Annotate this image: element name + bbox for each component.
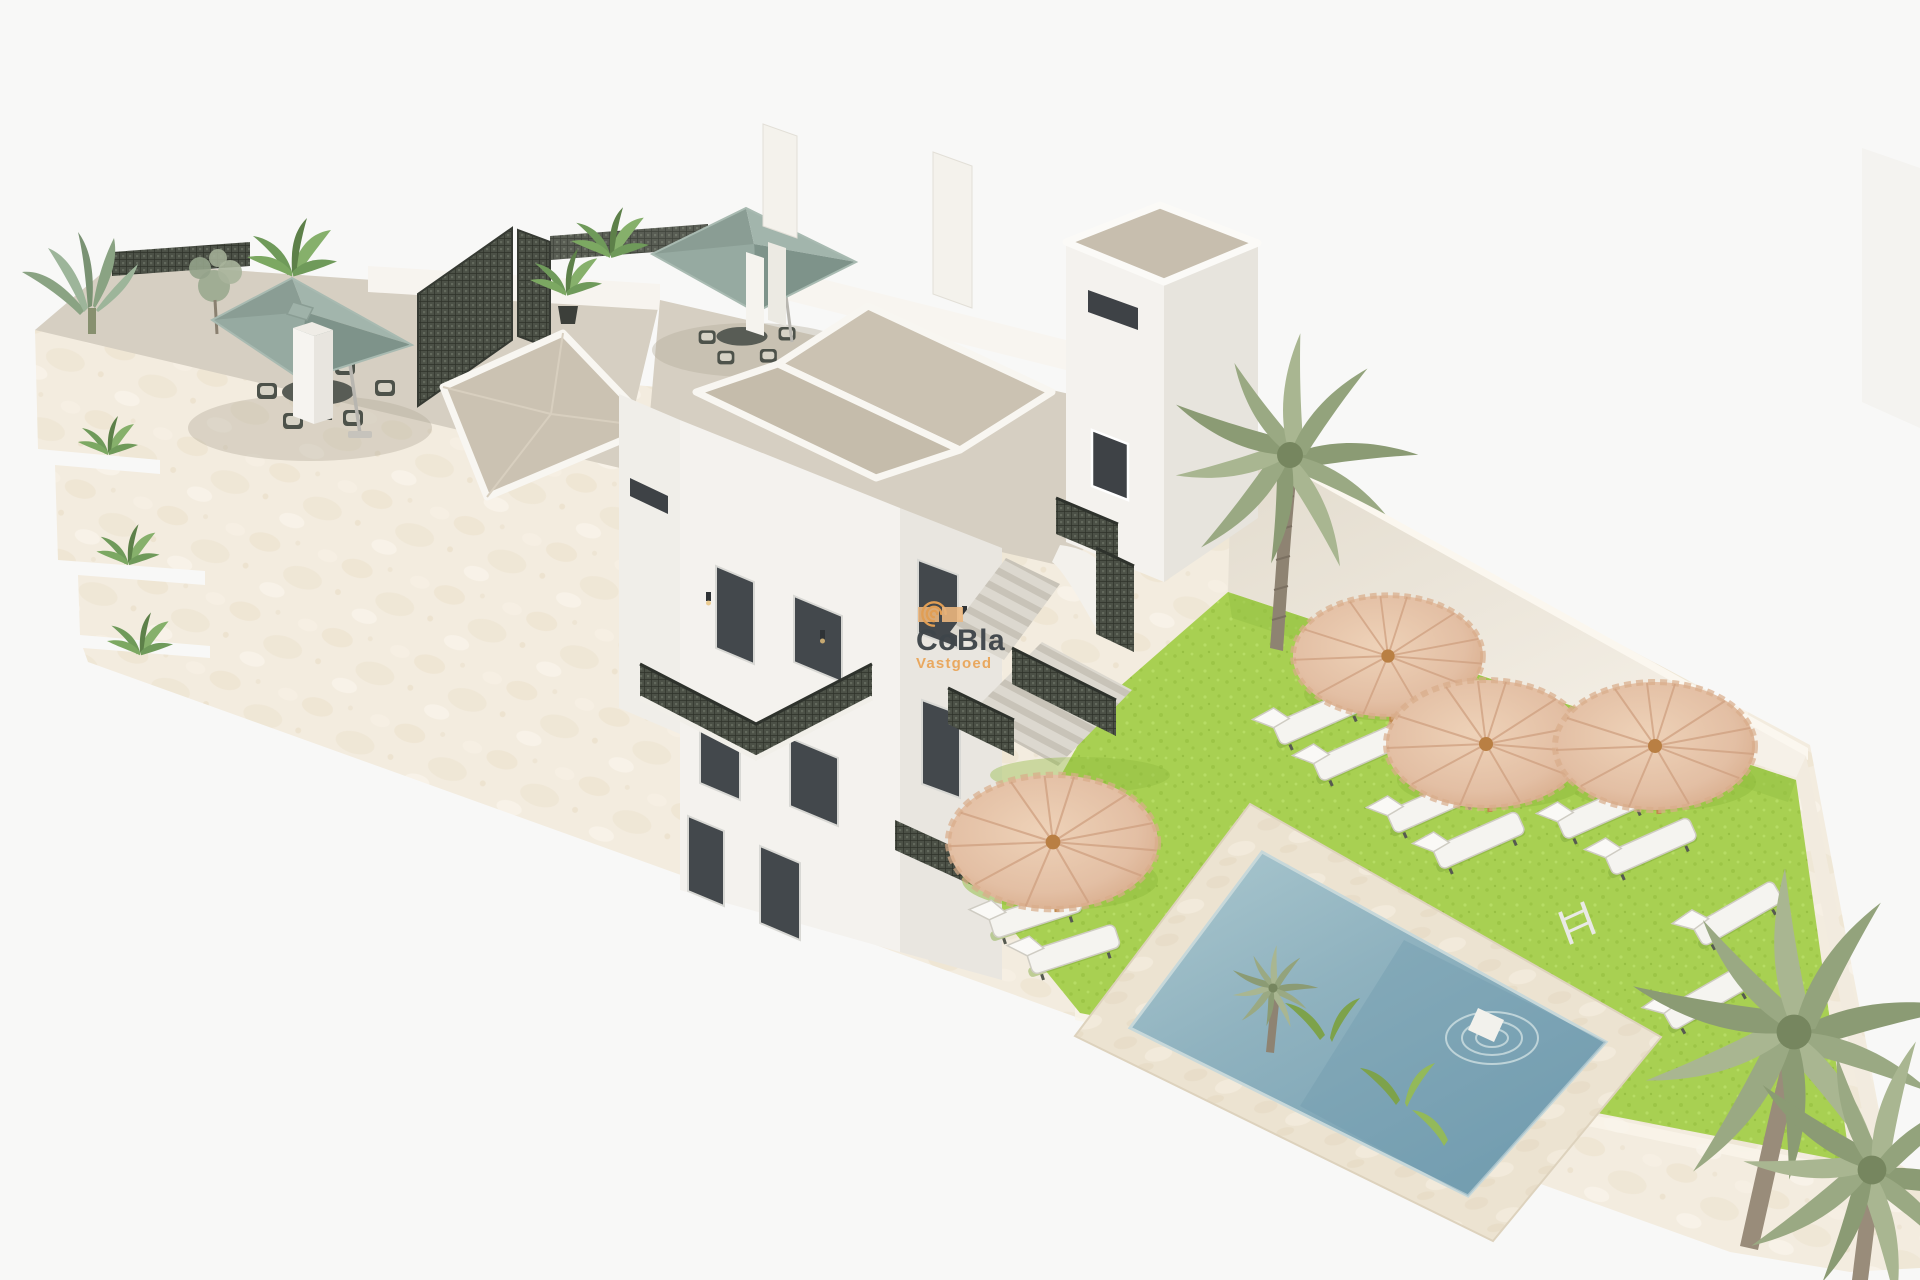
- terrace-2-plant-pot: [558, 306, 578, 324]
- architectural-render: [0, 0, 1920, 1280]
- render-canvas: CoBla Vastgoed: [0, 0, 1920, 1280]
- terrace-1-chimney: [293, 322, 333, 424]
- lattice-privacy-screen-b: [518, 230, 550, 348]
- neighbor-wall-sliver: [1862, 148, 1920, 428]
